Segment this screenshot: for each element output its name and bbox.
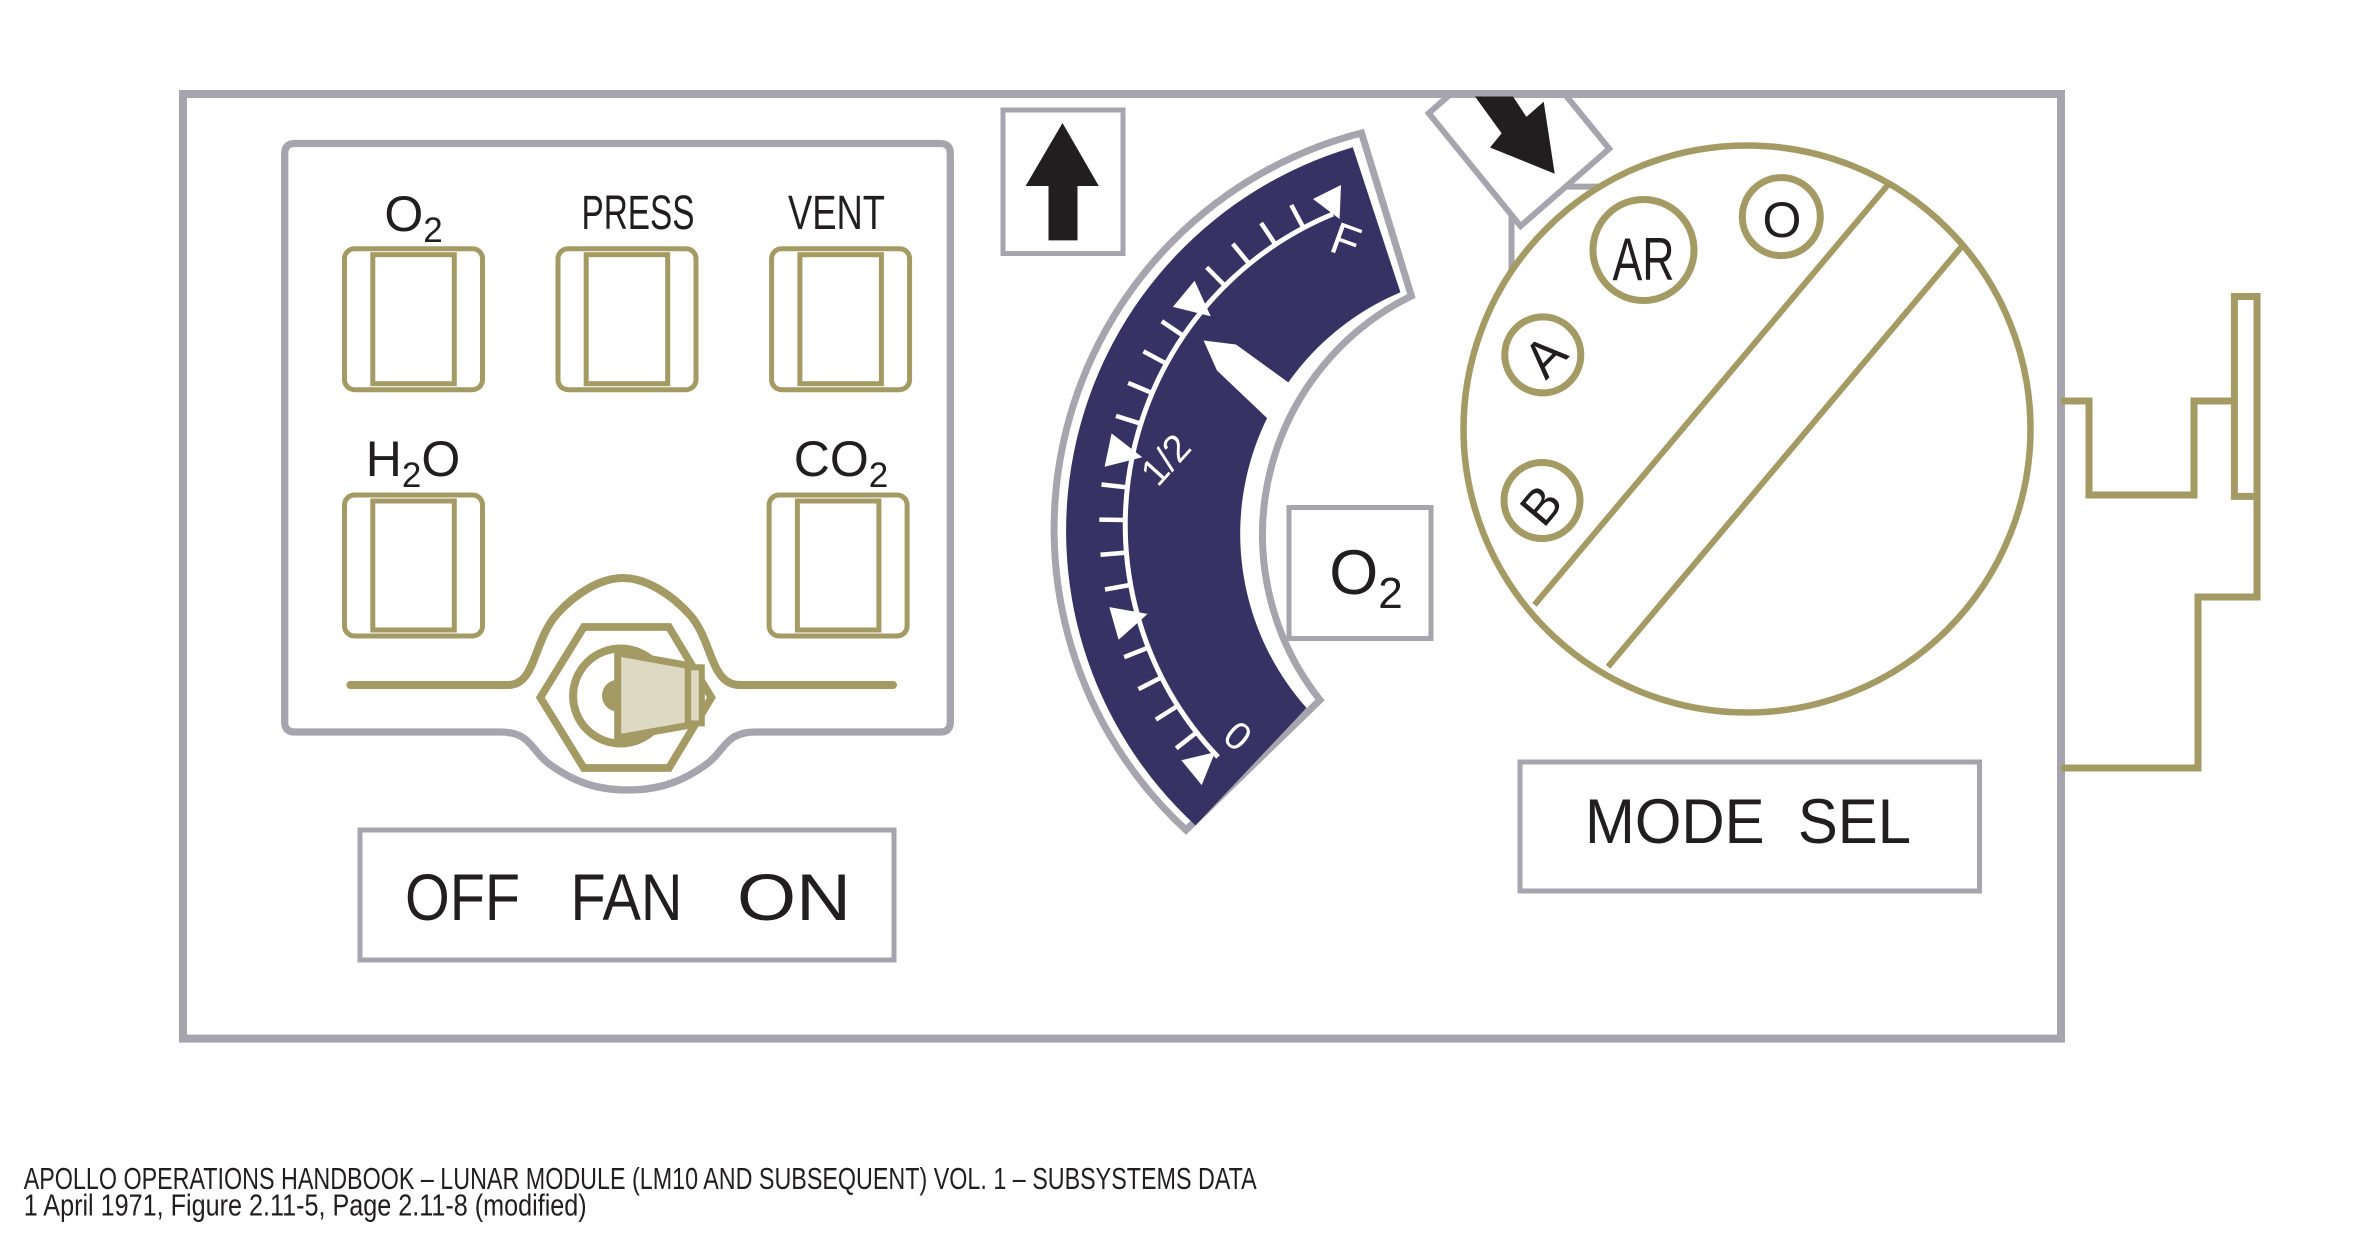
svg-text:1 April 1971, Figure 2.11-5, P: 1 April 1971, Figure 2.11-5, Page 2.11-8… [24, 1188, 587, 1223]
svg-text:AR: AR [1613, 226, 1675, 293]
svg-text:O: O [1763, 192, 1802, 248]
svg-text:MODE SEL: MODE SEL [1585, 787, 1911, 857]
svg-text:FAN: FAN [571, 860, 683, 934]
svg-text:OFF: OFF [405, 860, 520, 934]
svg-text:ON: ON [737, 860, 851, 934]
svg-text:VENT: VENT [788, 187, 885, 240]
svg-text:PRESS: PRESS [582, 187, 695, 240]
